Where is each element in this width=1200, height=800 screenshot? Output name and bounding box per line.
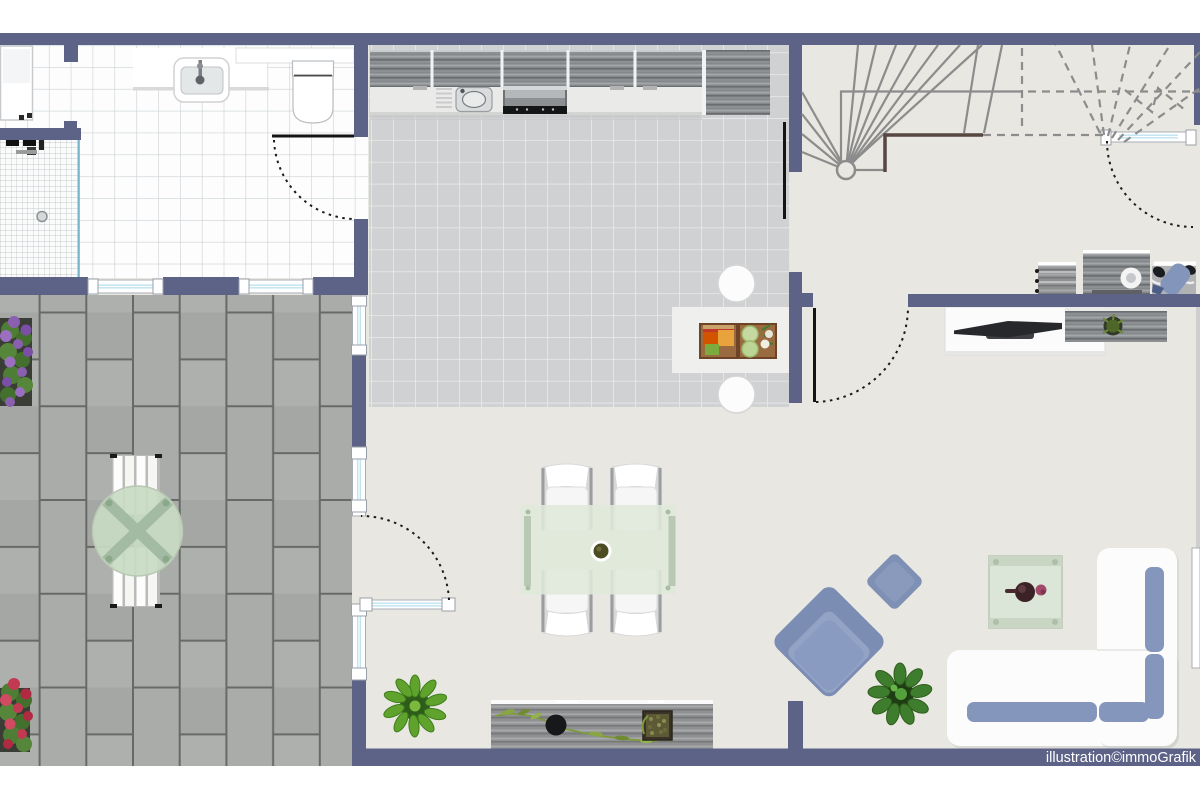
svg-text:illustration©immoGrafik: illustration©immoGrafik	[1046, 750, 1197, 766]
